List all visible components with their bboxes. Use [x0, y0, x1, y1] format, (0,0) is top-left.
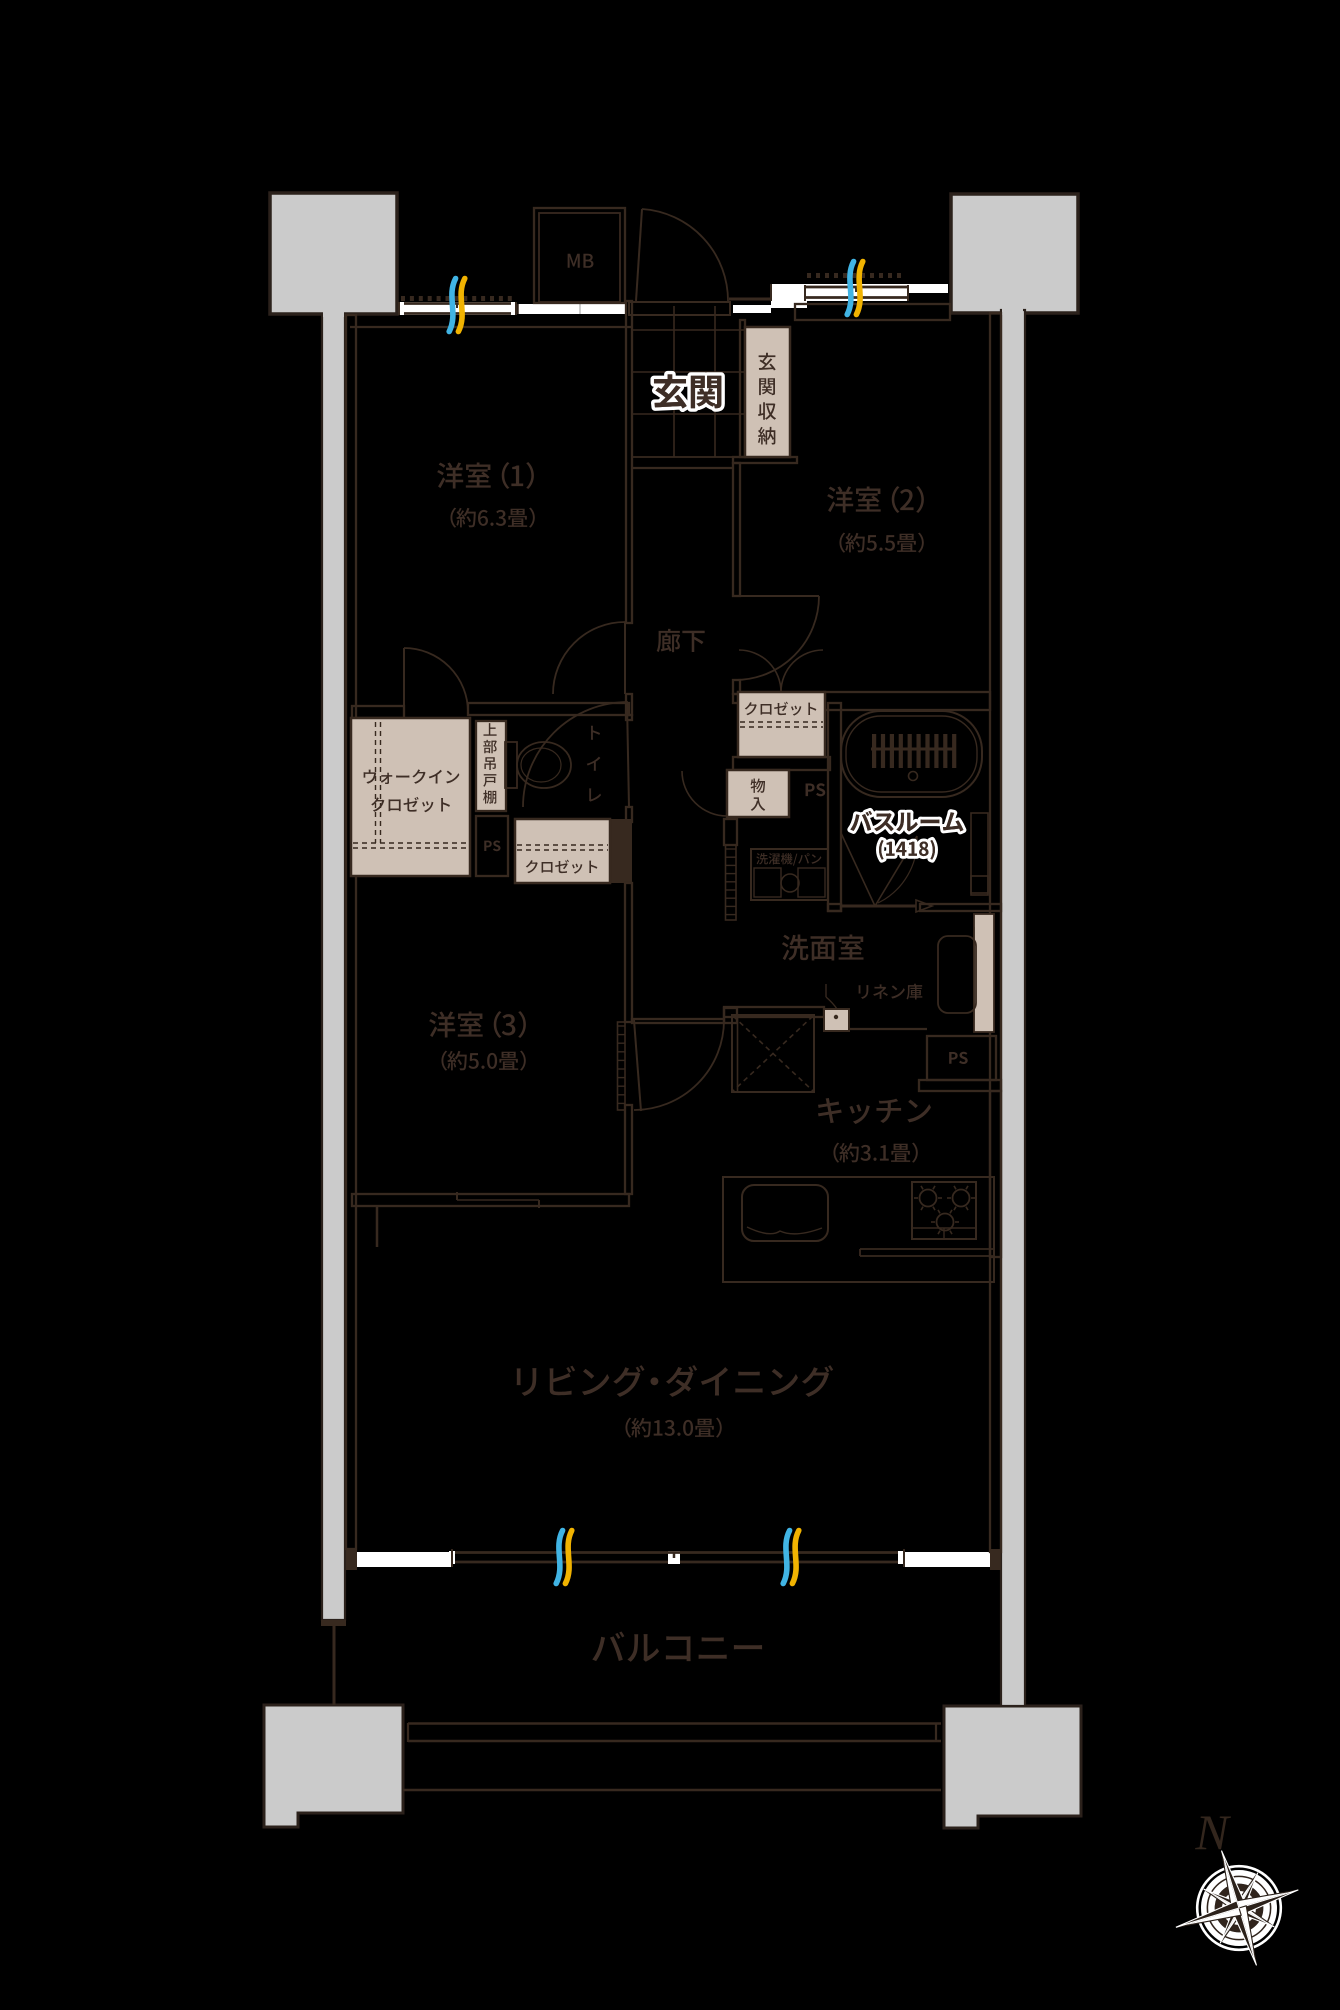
svg-text:N: N [1194, 1804, 1231, 1860]
